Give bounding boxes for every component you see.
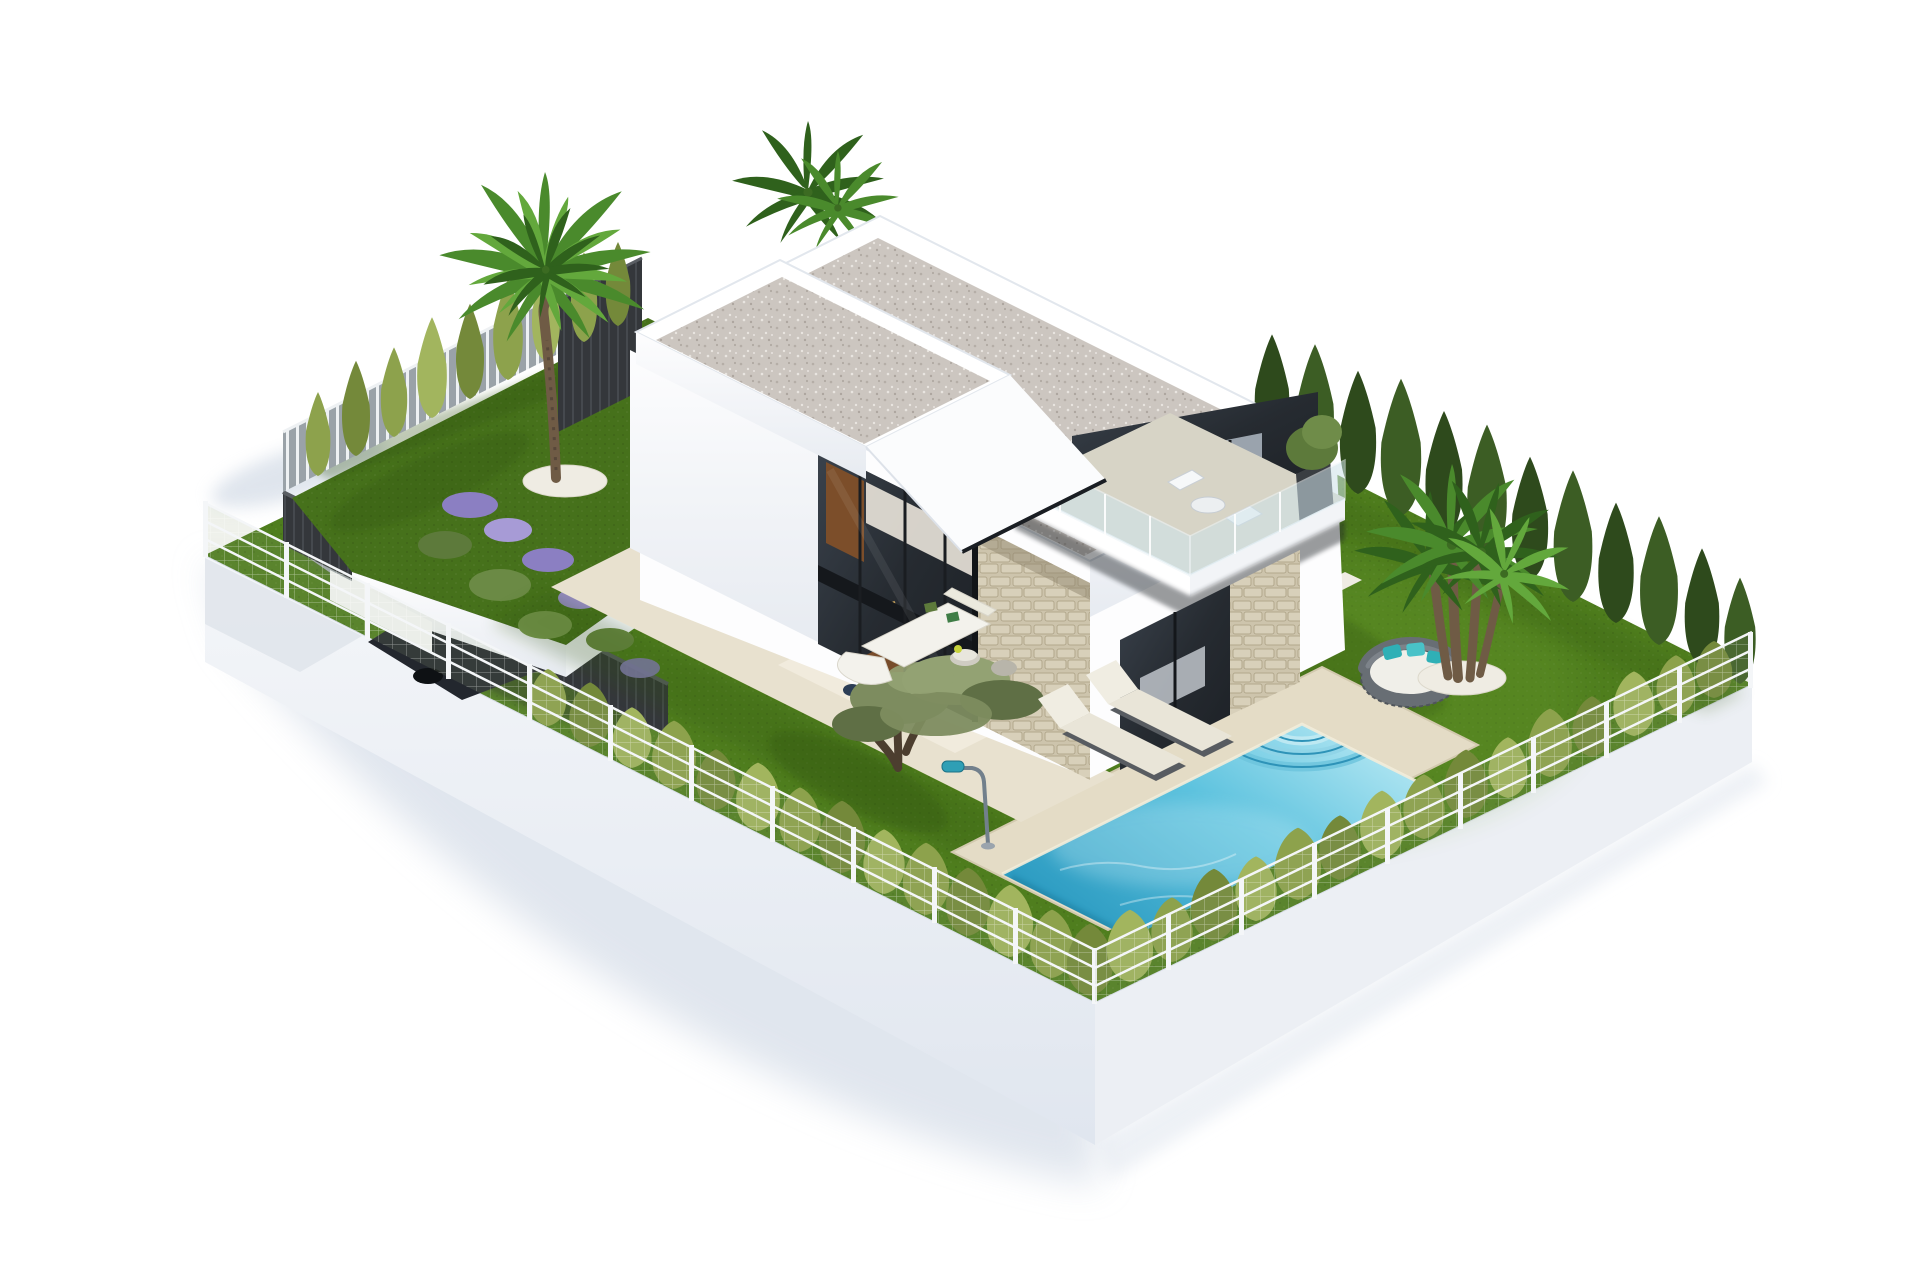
palm-gravel-circle (523, 465, 607, 497)
pouf (991, 660, 1017, 676)
render-canvas (0, 0, 1920, 1280)
villa-render (0, 0, 1920, 1280)
